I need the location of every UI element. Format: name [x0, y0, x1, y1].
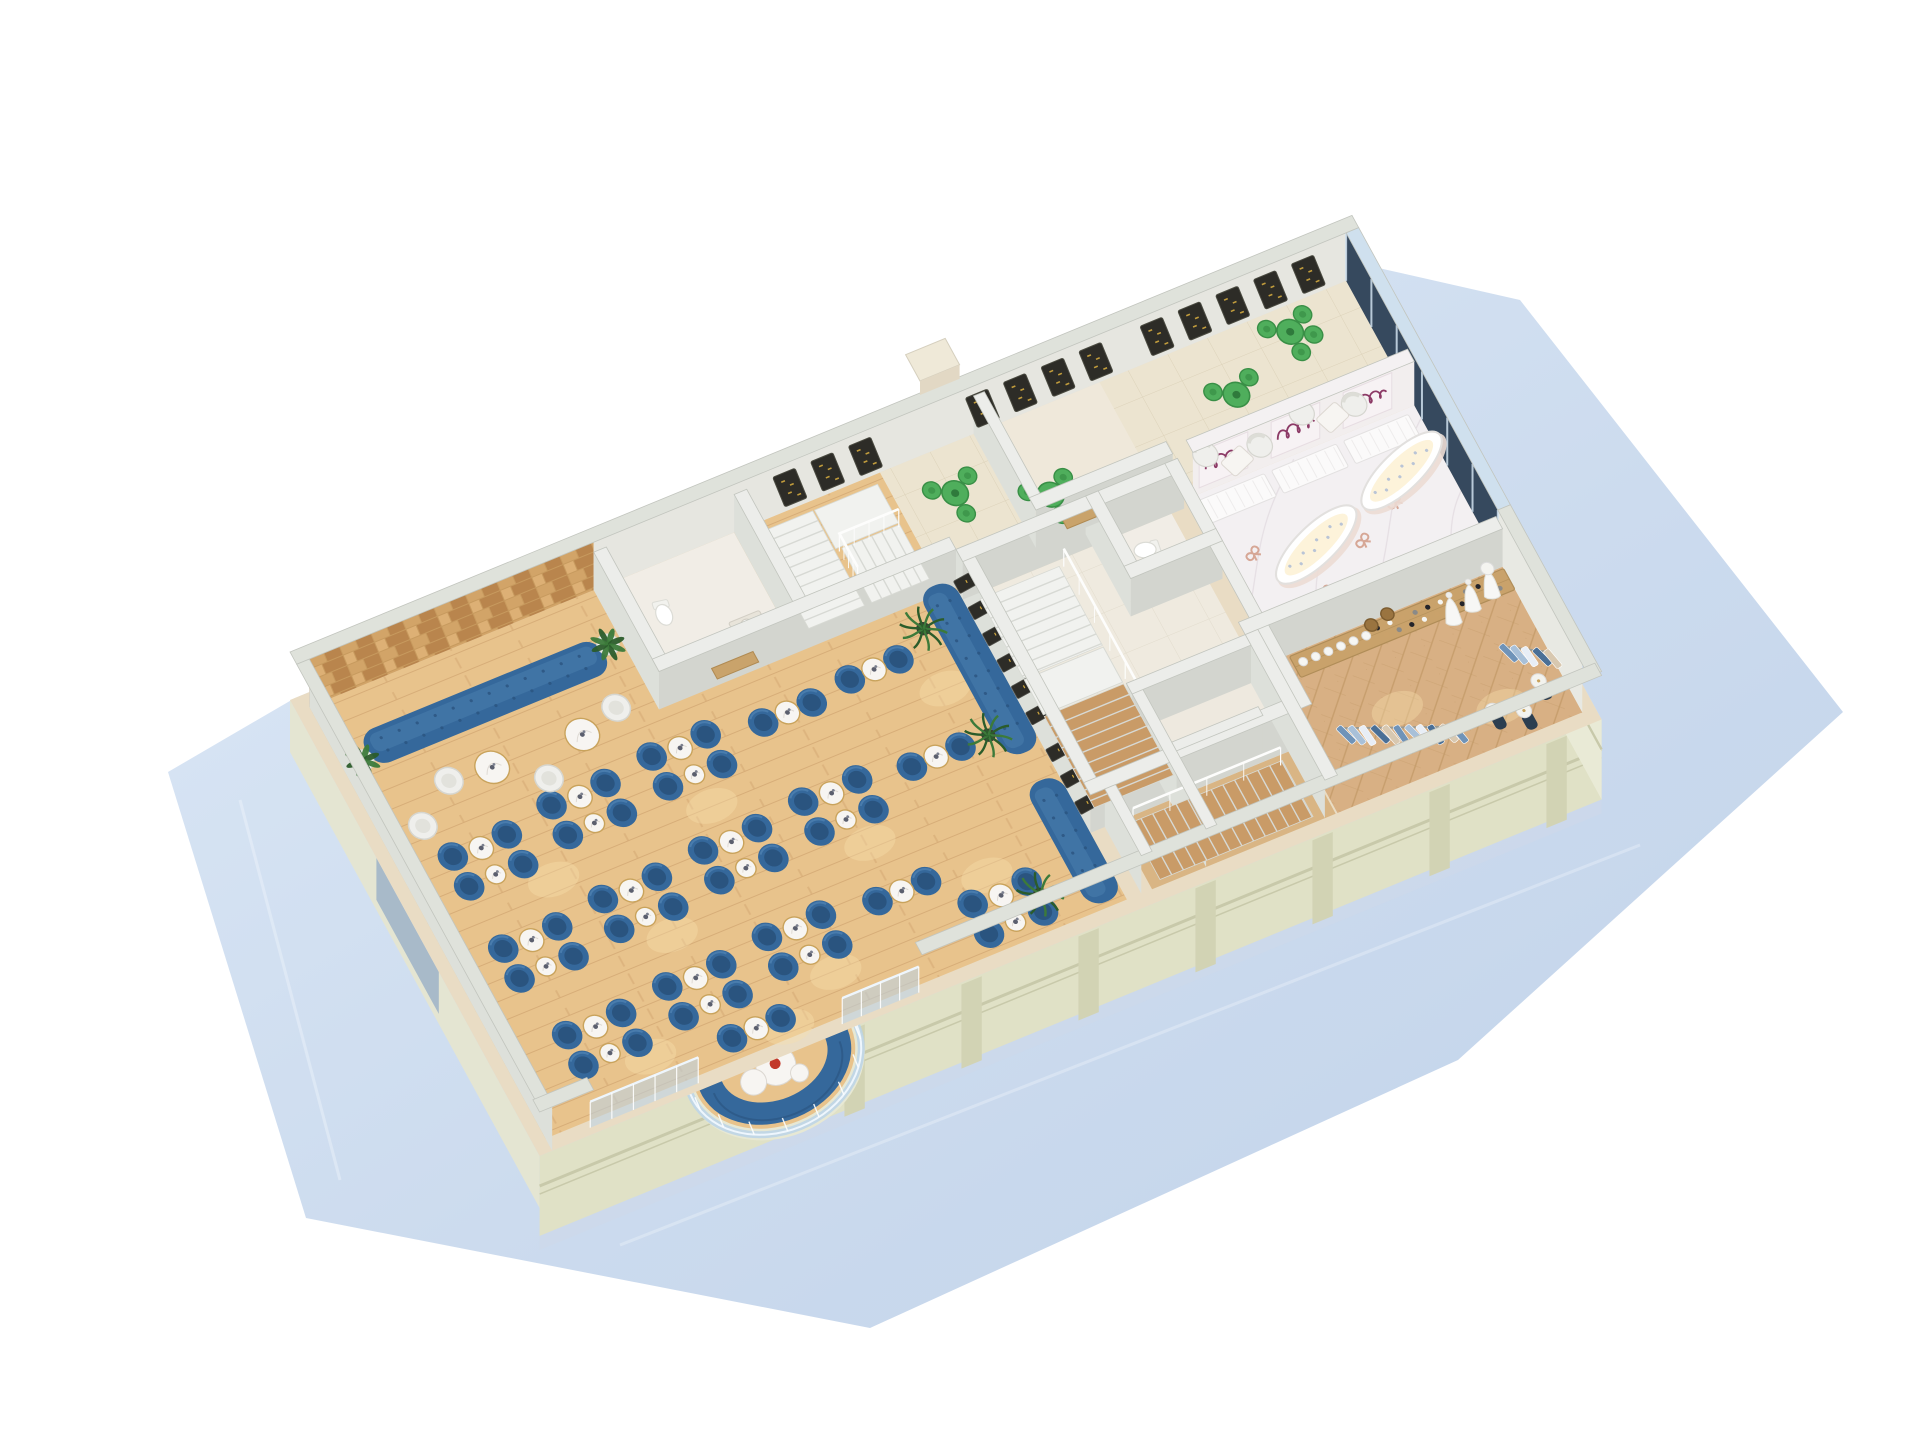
facade-pilaster: [1429, 784, 1449, 876]
floorplan-stage: [0, 0, 1920, 1440]
facade-pilaster: [1312, 832, 1332, 924]
facade-pilaster: [1546, 736, 1566, 828]
facade-pilaster: [961, 976, 981, 1068]
facade-pilaster: [1195, 880, 1215, 972]
isometric-floorplan-render: [0, 0, 1920, 1440]
facade-pilaster: [1078, 928, 1098, 1020]
